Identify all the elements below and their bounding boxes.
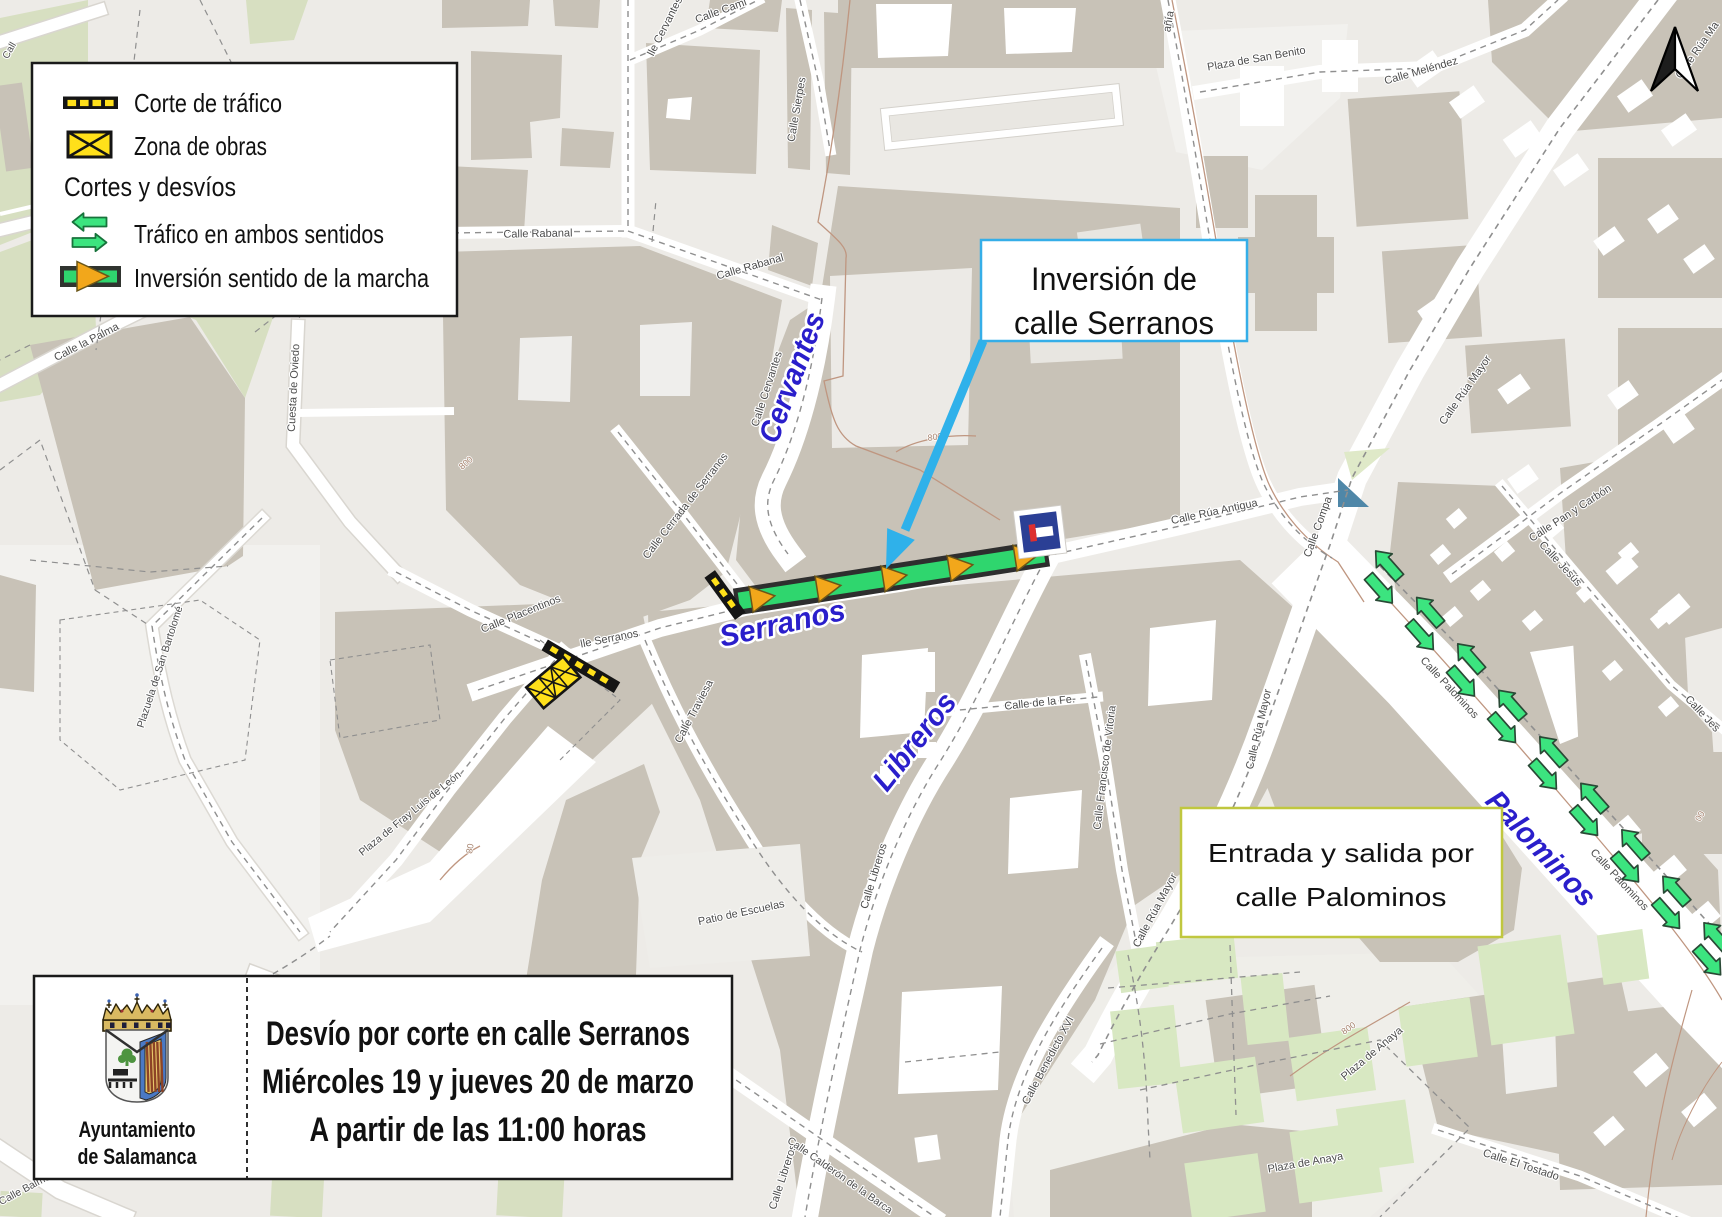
svg-text:Miércoles 19 y jueves 20 de ma: Miércoles 19 y jueves 20 de marzo bbox=[262, 1063, 694, 1101]
svg-text:calle Palominos: calle Palominos bbox=[1236, 882, 1447, 912]
svg-text:Inversión de: Inversión de bbox=[1031, 261, 1197, 297]
svg-text:80: 80 bbox=[464, 843, 476, 855]
svg-text:Zona de obras: Zona de obras bbox=[134, 131, 267, 161]
svg-text:Calle Rabanal: Calle Rabanal bbox=[503, 227, 572, 240]
svg-text:de Salamanca: de Salamanca bbox=[78, 1144, 198, 1169]
svg-text:Ayuntamiento: Ayuntamiento bbox=[79, 1117, 196, 1142]
svg-text:Cortes y desvíos: Cortes y desvíos bbox=[64, 172, 236, 202]
svg-text:Tráfico en ambos sentidos: Tráfico en ambos sentidos bbox=[134, 219, 384, 249]
svg-text:calle Serranos: calle Serranos bbox=[1014, 305, 1214, 341]
svg-text:Desvío por corte en calle Serr: Desvío por corte en calle Serranos bbox=[266, 1015, 690, 1053]
svg-text:A partir de las 11:00 horas: A partir de las 11:00 horas bbox=[310, 1111, 647, 1149]
svg-text:Entrada y salida por: Entrada y salida por bbox=[1208, 838, 1474, 868]
svg-text:Inversión sentido de la marcha: Inversión sentido de la marcha bbox=[134, 263, 429, 293]
svg-text:Corte de tráfico: Corte de tráfico bbox=[134, 88, 282, 118]
